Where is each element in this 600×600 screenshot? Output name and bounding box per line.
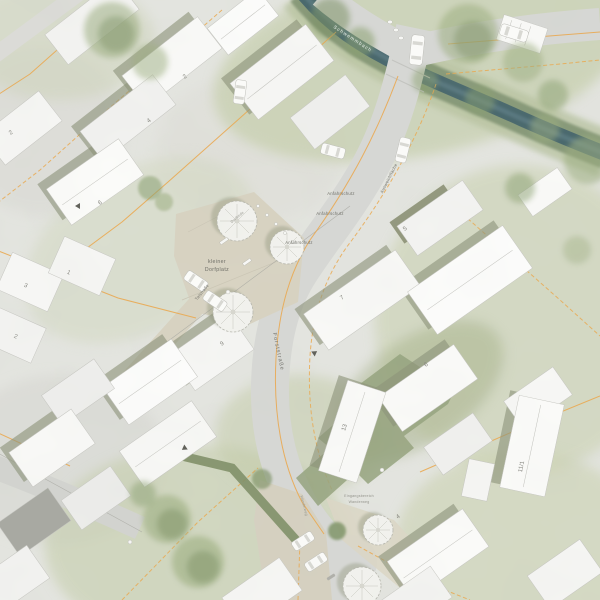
site-plan: Schwemmbach Forststraße Talstraße Auswei…: [0, 0, 600, 600]
paper-texture: [0, 0, 600, 600]
